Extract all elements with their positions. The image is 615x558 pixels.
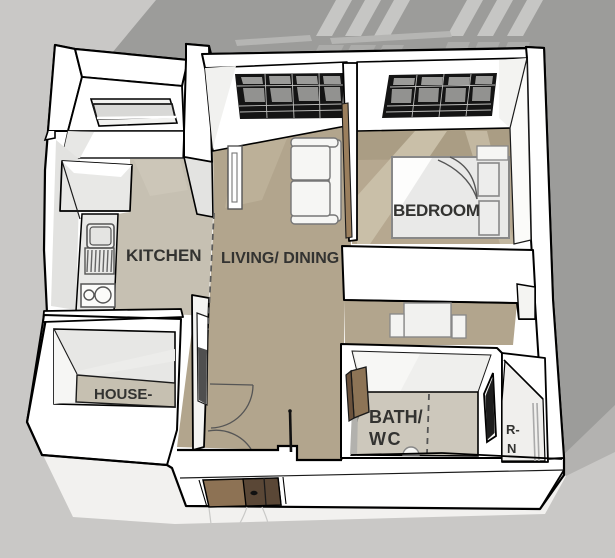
svg-text:BATH/: BATH/ — [369, 407, 423, 427]
svg-text:WC: WC — [369, 429, 402, 449]
svg-text:KITCHEN: KITCHEN — [126, 246, 202, 265]
svg-text:LIVING/ DINING: LIVING/ DINING — [221, 250, 339, 267]
svg-text:R-: R- — [506, 422, 520, 437]
svg-text:BEDROOM: BEDROOM — [393, 201, 480, 220]
svg-text:N: N — [507, 441, 516, 456]
svg-text:HOUSE-: HOUSE- — [94, 386, 152, 403]
